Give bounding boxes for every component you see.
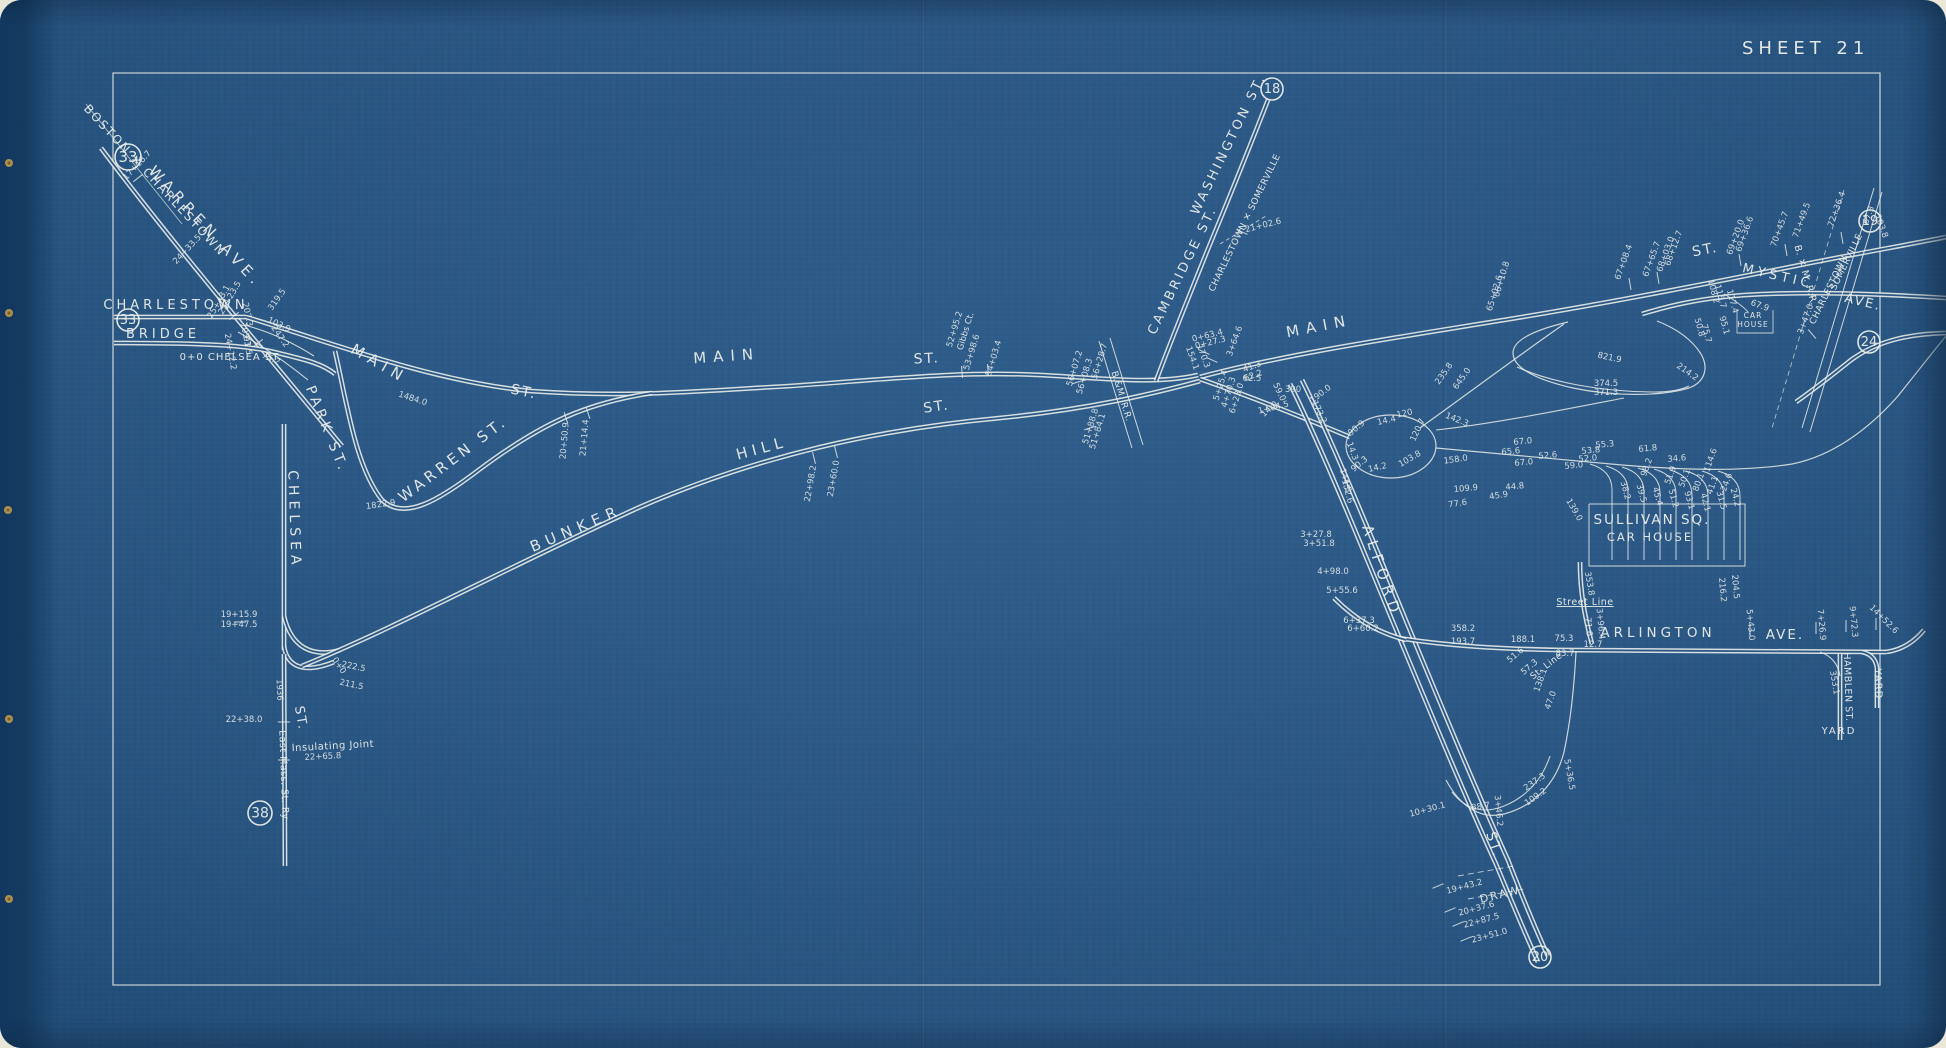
grommet-hole (8, 312, 11, 315)
survey-annotation: 235.8 (1433, 361, 1455, 387)
survey-annotation: 67.0 (1514, 457, 1534, 469)
survey-annotation: 70+45.7 (1769, 210, 1791, 248)
map-label: ST. (509, 382, 538, 403)
survey-annotation: 1936 (274, 679, 285, 701)
map-label: BUNKER (527, 501, 624, 556)
grommet-hole (8, 718, 11, 721)
map-label: HOUSE (1737, 320, 1769, 329)
survey-annotation: 19+47.5 (221, 620, 258, 630)
map-label: East Mass. St. Ry. (276, 730, 290, 822)
survey-annotation: 45.9 (1489, 490, 1509, 503)
survey-annotation: 80.1 (1691, 472, 1707, 493)
blueprint-map: 33331819243820BOSTON ✕ CHARLESTOWNWARREN… (0, 0, 1946, 1048)
survey-annotation: 83.7 (1556, 649, 1575, 659)
map-label: MAIN (1285, 311, 1354, 341)
map-label: ARLINGTON (1600, 625, 1715, 641)
map-label: ST. (913, 350, 940, 367)
survey-annotation: 72+36.4 (1826, 190, 1848, 228)
survey-tick (813, 452, 816, 464)
survey-annotation: 10+30.1 (1408, 800, 1446, 819)
survey-annotation: 4+98.0 (1317, 567, 1348, 577)
sheet-ref-number: 20 (1532, 950, 1549, 965)
map-label: HAMBLEN ST. (1841, 652, 1854, 721)
map-label: ST. (1482, 830, 1505, 860)
sheet-ref-number: 38 (251, 806, 269, 822)
path-bunker-hill-st-inner (302, 381, 1200, 666)
survey-annotation: 821.9 (1596, 351, 1622, 366)
survey-annotation: 67+08.4 (1613, 243, 1635, 281)
survey-annotation: 12.7 (1584, 640, 1603, 650)
survey-annotation: 158.0 (1443, 453, 1468, 466)
survey-annotation: 95.1 (1717, 315, 1732, 336)
survey-annotation: 5+55.6 (1326, 586, 1357, 596)
survey-annotation: 7+26.9 (1815, 609, 1828, 641)
survey-annotation: 65.6 (1501, 446, 1521, 458)
survey-annotation: 77.6 (1448, 498, 1468, 511)
survey-annotation: 39.5 (1634, 483, 1649, 504)
map-label: ST. (922, 397, 950, 416)
survey-annotation: 75.7 (1699, 323, 1714, 344)
survey-tick (1808, 329, 1816, 338)
survey-annotation: 142.3 (1444, 411, 1470, 429)
survey-tick (1785, 244, 1787, 256)
grommet-hole (8, 162, 11, 165)
survey-annotation: 204.5 (1729, 574, 1741, 599)
survey-annotation: 31.5 (1714, 490, 1729, 511)
survey-annotation: 55.3 (1595, 439, 1615, 451)
map-label: MAIN (693, 345, 761, 368)
survey-annotation: 47.0 (1543, 690, 1559, 711)
survey-tick (1739, 254, 1741, 266)
survey-annotation: 23+60.0 (826, 460, 842, 498)
grommet-hole (8, 898, 11, 901)
map-label: YARD (1821, 726, 1857, 737)
survey-annotation: 211.5 (338, 678, 364, 693)
map-label: CAR HOUSE (1607, 530, 1693, 544)
survey-annotation: 645.0 (1451, 366, 1473, 392)
survey-annotation: 1822.9 (365, 498, 396, 512)
survey-annotation: 14+52.6 (1867, 603, 1900, 636)
survey-annotation: 3+64.6 (1225, 325, 1245, 358)
survey-annotation: 52.6 (1538, 450, 1558, 462)
survey-tick (835, 446, 838, 458)
survey-annotation: 20+50.9 (558, 422, 571, 460)
fold-shadow-right (1902, 0, 1946, 1048)
map-label: ST. (1691, 240, 1720, 261)
survey-annotation: 5+36.5 (1561, 758, 1576, 791)
path-chelsea-curve-b (284, 616, 340, 653)
path-draw-dash-1 (1458, 866, 1514, 876)
survey-annotation: 188.1 (1511, 635, 1535, 645)
survey-annotation: 3+51.8 (1303, 539, 1334, 549)
survey-annotation: 216.2 (1716, 577, 1728, 602)
survey-tick (1629, 278, 1631, 290)
survey-tick (1444, 908, 1455, 913)
path-bunker-hill-st (302, 381, 1200, 666)
survey-annotation: 1484.0 (397, 390, 428, 409)
grommet-hole (7, 509, 10, 512)
survey-annotation: 14.2 (1367, 461, 1388, 475)
survey-annotation: 214.2 (1674, 361, 1700, 383)
map-label: BRIDGE (126, 327, 200, 342)
map-label: ALFORD (1358, 523, 1405, 621)
survey-annotation: 193.7 (1451, 637, 1475, 647)
survey-annotation: 61.8 (1638, 443, 1658, 455)
map-label: ST. (291, 705, 310, 732)
sheet-ref-number: 24 (1861, 335, 1878, 350)
survey-annotation: 9+72.3 (1847, 606, 1860, 638)
survey-annotation: 93.1 (1682, 490, 1697, 511)
fold-shadow-top (0, 0, 1946, 26)
survey-annotation: 319.5 (266, 287, 288, 313)
survey-annotation: 19+15.9 (221, 610, 258, 620)
survey-annotation: 109.9 (1453, 483, 1478, 495)
survey-annotation: 3+96.4 (1594, 608, 1607, 640)
blueprint-photo: 33331819243820BOSTON ✕ CHARLESTOWNWARREN… (0, 0, 1946, 1048)
survey-annotation: 21+14.4 (578, 419, 591, 457)
survey-annotation: 44.8 (1505, 481, 1525, 493)
survey-annotation: 6+60.2 (1347, 624, 1378, 634)
survey-annotation: 51.2 (1666, 488, 1681, 509)
map-label: YARD (1871, 667, 1883, 699)
survey-annotation: 22+38.0 (226, 715, 263, 725)
survey-annotation: 371.3 (1594, 388, 1618, 398)
fold-shadow-bottom (0, 1018, 1946, 1048)
survey-annotation: 22+65.8 (304, 751, 341, 763)
survey-annotation: 34.6 (1667, 453, 1687, 465)
map-label: SULLIVAN SQ. (1594, 512, 1711, 528)
survey-tick (1432, 884, 1443, 889)
survey-annotation: 390 (1285, 385, 1301, 395)
map-label: CHELSEA (284, 470, 303, 570)
survey-annotation: 0+0 (329, 656, 347, 676)
sheet-number-label: Sheet 21 (1742, 38, 1922, 59)
map-label: CAR (1744, 311, 1763, 320)
survey-annotation: 5+43.0 (1744, 609, 1757, 641)
survey-annotation: 103.8 (1397, 449, 1423, 470)
survey-annotation: 120.7 (1409, 417, 1428, 443)
path-border-frame (113, 73, 1880, 985)
survey-annotation: 75.3 (1555, 634, 1574, 644)
survey-annotation: 24.2 (1728, 487, 1743, 508)
survey-annotation: 71+49.5 (1791, 201, 1813, 239)
map-label: AVE. (1766, 627, 1804, 643)
survey-annotation: 22+98.2 (803, 465, 819, 503)
survey-annotation: 38.2 (1618, 480, 1633, 501)
survey-tick (1657, 272, 1659, 284)
survey-annotation: 139.0 (1563, 497, 1584, 523)
survey-annotation: 358.2 (1451, 624, 1475, 634)
survey-annotation: 23+51.0 (1470, 926, 1508, 945)
map-label: Street Line (1556, 597, 1613, 608)
survey-annotation: 71.6 (1582, 617, 1594, 637)
sheet-ref-number: 33 (120, 313, 137, 328)
survey-tick (1841, 232, 1843, 244)
